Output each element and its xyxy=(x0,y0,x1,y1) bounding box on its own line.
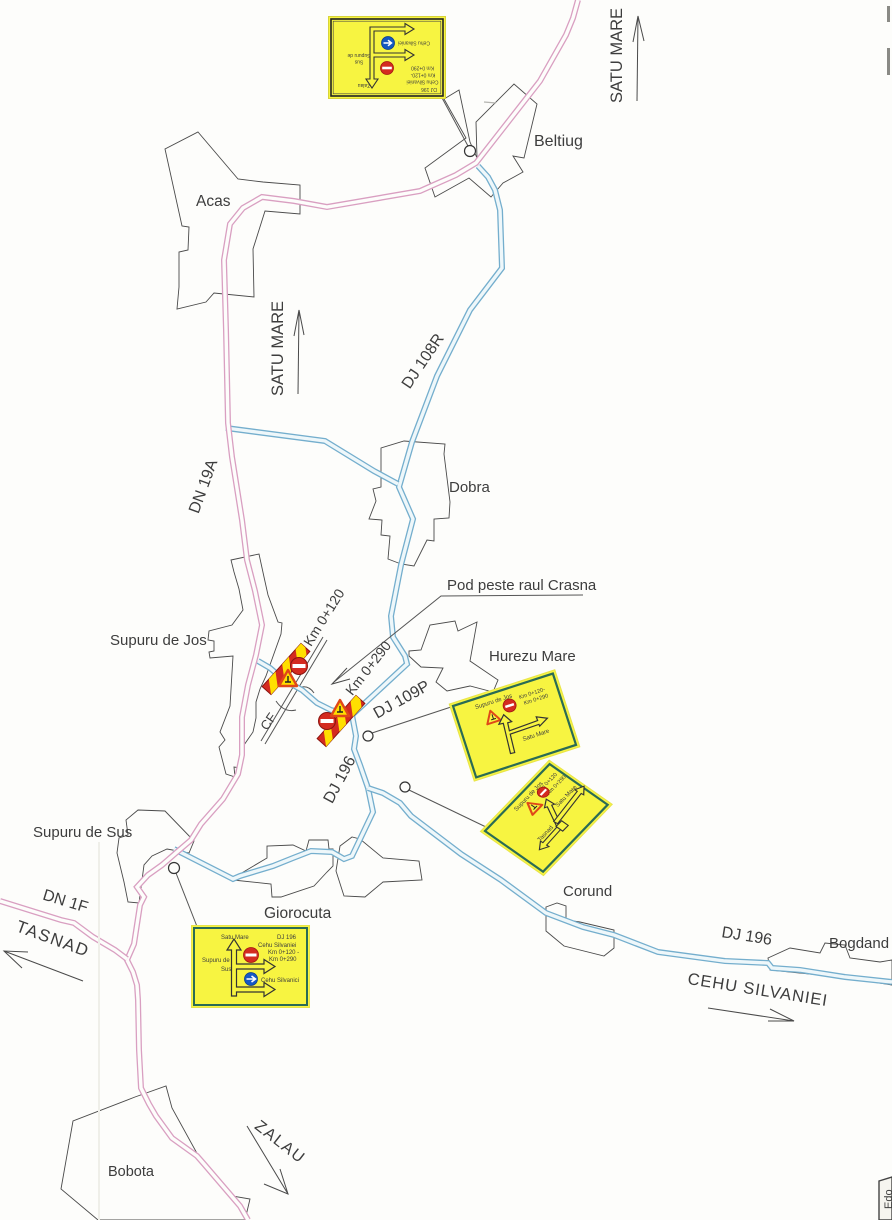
svg-text:Dobra: Dobra xyxy=(449,479,491,496)
svg-text:SATU MARE: SATU MARE xyxy=(608,8,626,103)
svg-text:Hurezu Mare: Hurezu Mare xyxy=(489,648,576,665)
svg-text:Beltiug: Beltiug xyxy=(534,133,583,150)
svg-text:Acas: Acas xyxy=(196,193,231,210)
svg-text:Pod peste raul Crasna: Pod peste raul Crasna xyxy=(447,577,597,594)
svg-text:Corund: Corund xyxy=(563,883,612,900)
svg-text:Km 0+290: Km 0+290 xyxy=(411,65,434,71)
svg-text:Km 0+120 -: Km 0+120 - xyxy=(268,950,299,956)
svg-text:Km 0+120-: Km 0+120- xyxy=(410,72,435,78)
svg-text:DJ 196: DJ 196 xyxy=(421,86,437,92)
svg-text:Supuru de Jos: Supuru de Jos xyxy=(110,632,207,649)
svg-text:Supuru de: Supuru de xyxy=(347,52,370,58)
svg-text:Cehu Silvaniei: Cehu Silvaniei xyxy=(258,943,296,949)
svg-text:Cehu Silvanici: Cehu Silvanici xyxy=(261,978,299,984)
svg-text:DJ 196: DJ 196 xyxy=(277,935,297,941)
svg-text:Giorocuta: Giorocuta xyxy=(264,905,332,922)
svg-text:Bobota: Bobota xyxy=(108,1164,155,1180)
svg-text:Sus: Sus xyxy=(221,967,231,973)
svg-text:Supuru de Sus: Supuru de Sus xyxy=(33,824,132,841)
svg-text:Zalau: Zalau xyxy=(358,82,371,88)
svg-text:SATU MARE: SATU MARE xyxy=(269,301,287,396)
svg-text:Km 0+290: Km 0+290 xyxy=(269,957,297,963)
svg-text:Supuru de: Supuru de xyxy=(202,958,230,964)
svg-text:Cehu Silvaniei: Cehu Silvaniei xyxy=(407,79,439,85)
svg-text:Sus: Sus xyxy=(354,59,363,65)
svg-text:Bogdand: Bogdand xyxy=(829,935,889,952)
svg-text:Cehu Silvaniei: Cehu Silvaniei xyxy=(398,40,430,46)
svg-text:Edo: Edo xyxy=(883,1189,892,1209)
